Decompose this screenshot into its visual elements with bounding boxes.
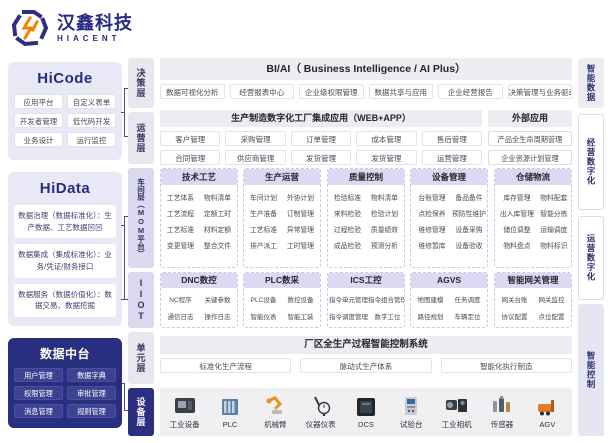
decision-item: 经营报表中心 — [230, 84, 295, 99]
instrument-icon — [308, 395, 334, 417]
layer-operation: 运营层 — [128, 112, 154, 164]
decision-item: 企业级权限管理 — [299, 84, 364, 99]
unit-item: 标准化生产流程 — [160, 358, 291, 373]
operations-row-2: 合同管理供应商管理发货管理发货管理运营管理 — [160, 150, 482, 165]
external-app-header: 外部应用 — [488, 110, 572, 127]
hidata-items: 数据治理（数据标准化）：生产数据、工艺数据⊠⊠数据集成（集成标准化）：业务/凭证… — [8, 197, 122, 317]
external-item-plm: 产品全生命周期管理 — [488, 131, 572, 146]
iiot-col-agvs: AGVS 地图建模任务调度路径规划车辆定位 — [410, 272, 488, 328]
factory-app-header: 生产制造数字化工厂集成应用（WEB+APP） — [160, 110, 482, 127]
data-center-item: 消息管理 — [14, 404, 63, 418]
hiacent-logo-icon — [10, 8, 50, 48]
connector-line — [124, 410, 128, 411]
mom-item: 车间计划 — [245, 192, 282, 202]
hidata-item: 数据集成（集成标准化）：业务/凭证/财务接口 — [14, 244, 116, 277]
bi-ai-header: BI/AI（ Business Intelligence / AI Plus） — [160, 58, 572, 80]
layer-iiot: IIOT — [128, 272, 154, 328]
mom-col-warehouse: 仓储物流 库存管理物料配套出入库管理智能分拣储位调整运输调度物料盘点物料标识 — [494, 168, 572, 268]
device-sensor: 传感器 — [480, 395, 524, 430]
iiot-item: 关键参数 — [199, 294, 236, 304]
mom-item: 定额工时 — [199, 208, 236, 218]
decision-item: 企业经营报告 — [438, 84, 503, 99]
connector-line — [124, 88, 125, 136]
iiot-item: 路径规划 — [412, 311, 449, 321]
mom-item: 维修管理 — [412, 224, 452, 234]
connector-line — [121, 383, 124, 384]
mom-col-title: 质量控制 — [328, 169, 404, 185]
connector-line — [124, 136, 128, 137]
logo: 汉鑫科技 HIACENT — [10, 8, 133, 48]
mom-item: 预防性维护 — [452, 208, 486, 218]
connector-line — [124, 216, 128, 217]
mom-item: 检验标准 — [329, 192, 366, 202]
hicode-title: HiCode — [8, 62, 122, 87]
mom-item: 物料盘点 — [496, 240, 538, 250]
mom-item: 工时管理 — [282, 240, 319, 250]
hidata-panel: HiData 数据治理（数据标准化）：生产数据、工艺数据⊠⊠数据集成（集成标准化… — [8, 172, 122, 326]
mom-item: 预测分析 — [366, 240, 403, 250]
data-center-item: 权限管理 — [14, 386, 63, 400]
unit-items: 标准化生产流程脉动式生产体系智能化执行制造 — [160, 358, 572, 374]
connector-line — [124, 216, 125, 300]
layer-decision: 决策层 — [128, 58, 154, 108]
iiot-col-title: PLC数采 — [244, 273, 320, 288]
iiot-item: 网关监控 — [533, 294, 570, 304]
layer-unit: 单元层 — [128, 332, 154, 384]
mom-item: 整合文件 — [199, 240, 236, 250]
hicode-panel: HiCode 应用平台自定义表单开发者管理低代码开发业务设计运行监控 — [8, 62, 122, 160]
data-center-item: 用户管理 — [14, 368, 63, 382]
device-robot-arm: 机械臂 — [253, 395, 297, 430]
iiot-col-title: AGVS — [411, 273, 487, 288]
operations-item: 成本管理 — [356, 131, 416, 146]
mom-item: 物料清单 — [199, 192, 236, 202]
iiot-item: 协议配置 — [496, 311, 533, 321]
right-label-smart-data: 智能数据 — [578, 58, 604, 108]
mom-col-title: 生产运营 — [244, 169, 320, 185]
brand-text: 汉鑫科技 HIACENT — [57, 13, 133, 44]
device-dcs: DCS — [344, 396, 388, 429]
hidata-item: 数据治理（数据标准化）：生产数据、工艺数据⊠⊠ — [14, 205, 116, 238]
brand-name-en: HIACENT — [57, 33, 133, 44]
mom-item: 维修暂库 — [412, 240, 452, 250]
layer-workshop: 车间层（MOM平台） — [128, 168, 154, 268]
decision-item: 数据共享与应用 — [369, 84, 434, 99]
decision-item: 决策管理与业务驱动 — [508, 84, 573, 99]
operations-item: 售后管理 — [422, 131, 482, 146]
connector-line — [121, 112, 124, 113]
iiot-item: 指令单元管理 — [329, 294, 368, 304]
iiot-item: 车辆定位 — [449, 311, 486, 321]
iiot-col-plc: PLC数采 PLC设备数控设备智能仪表智能工装 — [243, 272, 321, 328]
operations-item: 客户管理 — [160, 131, 220, 146]
mom-item: 检验计划 — [366, 208, 403, 218]
mom-item: 来料检验 — [329, 208, 366, 218]
mom-item: 工艺标准 — [162, 224, 199, 234]
operations-item: 订单管理 — [291, 131, 351, 146]
iiot-col-ics: ICS工控 指令单元管理指令组合管理指令调度管理数字工位 — [327, 272, 405, 328]
mom-col-production: 生产运营 车间计划外协计划生产准备订制管理工艺标准异常管理排产派工工时管理 — [243, 168, 321, 268]
mom-item: 物料清单 — [366, 192, 403, 202]
mom-item: 过程检验 — [329, 224, 366, 234]
connector-line — [124, 88, 128, 89]
mom-item: 异常管理 — [282, 224, 319, 234]
iiot-item: 任务调度 — [449, 294, 486, 304]
industrial-equipment-icon — [172, 395, 198, 417]
mom-item: 库存管理 — [496, 192, 538, 202]
mom-item: 成品检验 — [329, 240, 366, 250]
hicode-item: 业务设计 — [14, 132, 63, 147]
mom-item: 变更管理 — [162, 240, 199, 250]
mom-item: 外协计划 — [282, 192, 319, 202]
data-center-panel: 数据中台 用户管理数据字典权限管理审批管理消息管理规则管理 — [8, 338, 122, 428]
hicode-item: 运行监控 — [67, 132, 116, 147]
mom-item: 工艺体系 — [162, 192, 199, 202]
device-industrial-camera: 工业相机 — [435, 395, 479, 430]
architecture-diagram: 汉鑫科技 HIACENT HiCode 应用平台自定义表单开发者管理低代码开发业… — [0, 0, 608, 443]
mom-item: 储位调整 — [496, 224, 538, 234]
mom-col-process: 技术工艺 工艺体系物料清单工艺流程定额工时工艺标准材料定额变更管理整合文件 — [160, 168, 238, 268]
operations-item: 供应商管理 — [225, 150, 285, 165]
hicode-item: 应用平台 — [14, 94, 63, 109]
mom-item: 设备采购 — [452, 224, 486, 234]
mom-col-title: 技术工艺 — [161, 169, 237, 185]
data-center-item: 规则管理 — [67, 404, 116, 418]
mom-item: 物料标识 — [538, 240, 570, 250]
dcs-icon — [353, 396, 379, 418]
agv-icon — [534, 396, 560, 418]
iiot-item: 网关台账 — [496, 294, 533, 304]
data-center-item: 审批管理 — [67, 386, 116, 400]
hicode-item: 自定义表单 — [67, 94, 116, 109]
hidata-item: 数据服务（数据价值化）：数据交易、数据挖掘 — [14, 284, 116, 317]
operations-item: 发货管理 — [356, 150, 416, 165]
connector-line — [121, 299, 124, 300]
connector-line — [121, 225, 124, 226]
iiot-item: 指令组合管理 — [368, 294, 405, 304]
industrial-camera-icon — [444, 395, 470, 417]
connector-line — [124, 383, 125, 410]
mom-col-quality: 质量控制 检验标准物料清单来料检验检验计划过程检验质量绩效成品检验预测分析 — [327, 168, 405, 268]
device-industrial-equipment: 工业设备 — [163, 395, 207, 430]
right-label-business-digital: 经营数字化 — [578, 114, 604, 210]
hidata-title: HiData — [8, 172, 122, 197]
mom-item: 设备验收 — [452, 240, 486, 250]
operations-item: 发货管理 — [291, 150, 351, 165]
mom-col-title: 仓储物流 — [495, 169, 571, 185]
mom-item: 工艺标准 — [245, 224, 282, 234]
connector-line — [124, 299, 128, 300]
mom-item: 智能分拣 — [538, 208, 570, 218]
mom-item: 台账管理 — [412, 192, 452, 202]
mom-item: 运输调度 — [538, 224, 570, 234]
test-bench-icon — [398, 395, 424, 417]
operations-item: 采购管理 — [225, 131, 285, 146]
mom-col-title: 设备管理 — [411, 169, 487, 185]
hicode-items: 应用平台自定义表单开发者管理低代码开发业务设计运行监控 — [8, 87, 122, 147]
mom-item: 订制管理 — [282, 208, 319, 218]
iiot-item: 智能工装 — [282, 311, 319, 321]
iiot-item: 点位配置 — [533, 311, 570, 321]
data-center-item: 数据字典 — [67, 368, 116, 382]
mom-item: 排产派工 — [245, 240, 282, 250]
right-label-operation-digital: 运营数字化 — [578, 216, 604, 300]
iiot-col-title: 智能网关管理 — [495, 273, 571, 288]
layer-device: 设备层 — [128, 388, 154, 436]
unit-item: 智能化执行制造 — [441, 358, 572, 373]
external-item-erp: 企业资源计划管理 — [488, 150, 572, 165]
mom-item: 质量绩效 — [366, 224, 403, 234]
decision-items: 数据可视化分析经营报表中心企业级权限管理数据共享与应用企业经营报告决策管理与业务… — [160, 84, 572, 102]
iiot-col-title: DNC数控 — [161, 273, 237, 288]
mom-item: 生产准备 — [245, 208, 282, 218]
brand-name-cn: 汉鑫科技 — [57, 13, 133, 33]
device-agv: AGV — [525, 396, 569, 429]
device-strip: 工业设备 PLC 机械臂 — [160, 388, 572, 436]
iiot-item: PLC设备 — [245, 294, 282, 304]
iiot-item: 数控设备 — [282, 294, 319, 304]
iiot-item: 通信日志 — [162, 311, 199, 321]
iiot-item: 数字工位 — [368, 311, 405, 321]
robot-arm-icon — [262, 395, 288, 417]
plc-icon — [217, 396, 243, 418]
iiot-col-dnc: DNC数控 NC程序关键参数通信日志操作日志 — [160, 272, 238, 328]
mom-item: 物料配套 — [538, 192, 570, 202]
iiot-item: 指令调度管理 — [329, 311, 368, 321]
device-test-bench: 试验台 — [389, 395, 433, 430]
sensor-icon — [489, 395, 515, 417]
unit-header: 厂区全生产过程智能控制系统 — [160, 336, 572, 354]
mom-item: 备品备件 — [452, 192, 486, 202]
iiot-col-gateway: 智能网关管理 网关台账网关监控协议配置点位配置 — [494, 272, 572, 328]
right-label-smart-control: 智能控制 — [578, 304, 604, 436]
iiot-item: NC程序 — [162, 294, 199, 304]
iiot-item: 智能仪表 — [245, 311, 282, 321]
mom-item: 材料定额 — [199, 224, 236, 234]
data-center-title: 数据中台 — [8, 338, 122, 362]
operations-item: 合同管理 — [160, 150, 220, 165]
iiot-item: 地图建模 — [412, 294, 449, 304]
hicode-item: 开发者管理 — [14, 113, 63, 128]
operations-row-1: 客户管理采购管理订单管理成本管理售后管理 — [160, 131, 482, 146]
hicode-item: 低代码开发 — [67, 113, 116, 128]
mom-col-equipment: 设备管理 台账管理备品备件点检保养预防性维护维修管理设备采购维修暂库设备验收 — [410, 168, 488, 268]
mom-item: 点检保养 — [412, 208, 452, 218]
device-plc: PLC — [208, 396, 252, 429]
iiot-col-title: ICS工控 — [328, 273, 404, 288]
mom-item: 工艺流程 — [162, 208, 199, 218]
mom-item: 出入库管理 — [496, 208, 538, 218]
data-center-items: 用户管理数据字典权限管理审批管理消息管理规则管理 — [8, 362, 122, 418]
device-instrument: 仪器仪表 — [299, 395, 343, 430]
iiot-item: 操作日志 — [199, 311, 236, 321]
operations-item: 运营管理 — [422, 150, 482, 165]
decision-item: 数据可视化分析 — [160, 84, 225, 99]
unit-item: 脉动式生产体系 — [300, 358, 431, 373]
